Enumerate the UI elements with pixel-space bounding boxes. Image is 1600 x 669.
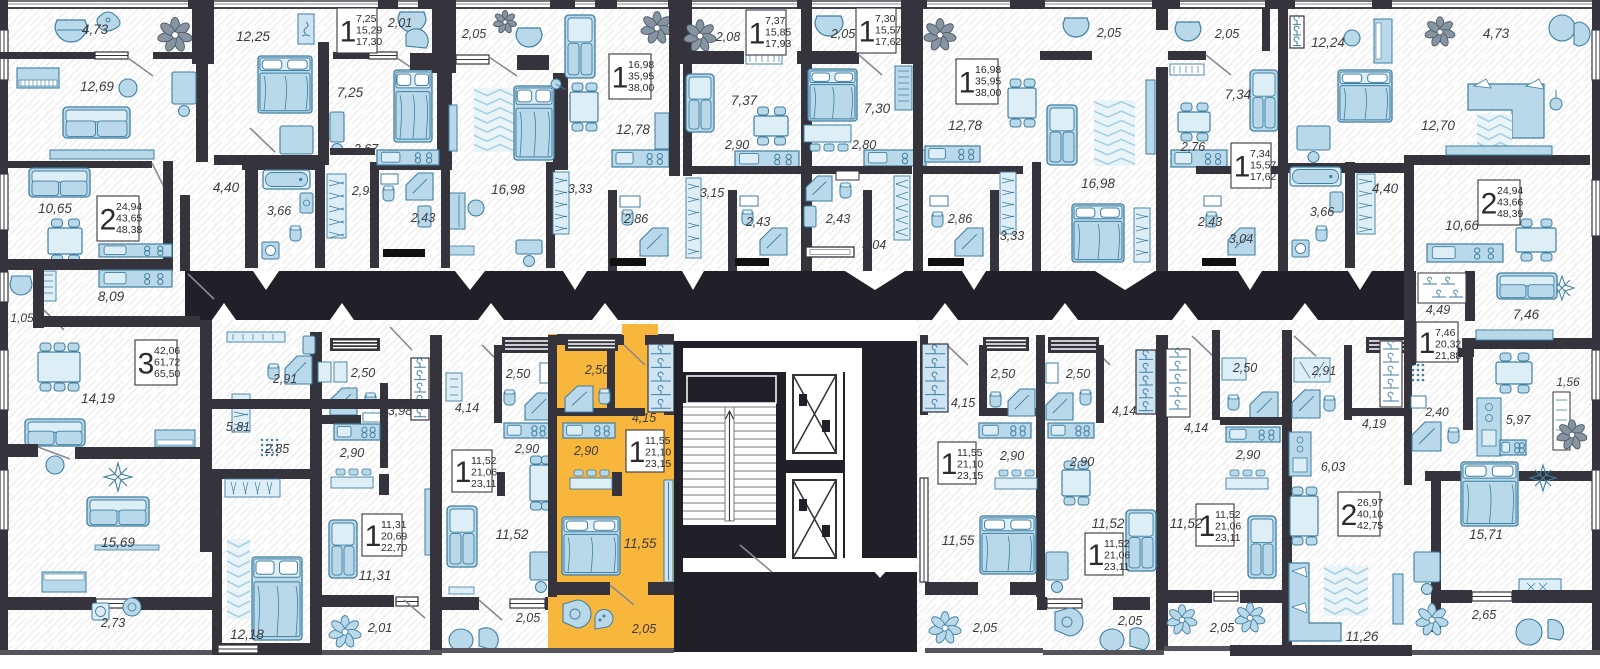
svg-text:20,32: 20,32: [1435, 339, 1461, 351]
svg-text:11,55: 11,55: [942, 533, 975, 548]
svg-text:17,62: 17,62: [875, 36, 901, 48]
svg-text:11,52: 11,52: [1170, 516, 1203, 531]
svg-text:2,43: 2,43: [1197, 215, 1222, 229]
svg-text:35,95: 35,95: [628, 71, 654, 83]
svg-text:12,78: 12,78: [616, 122, 650, 137]
svg-text:11,55: 11,55: [624, 536, 657, 551]
svg-text:12,78: 12,78: [948, 118, 982, 133]
svg-text:4,73: 4,73: [82, 22, 109, 37]
svg-text:11,52: 11,52: [471, 455, 497, 467]
svg-text:15,57: 15,57: [875, 25, 901, 37]
svg-text:2,05: 2,05: [1214, 27, 1239, 41]
svg-text:3,98: 3,98: [388, 404, 412, 418]
svg-text:22,70: 22,70: [381, 542, 407, 554]
svg-text:7,46: 7,46: [1435, 327, 1456, 339]
svg-text:7,25: 7,25: [337, 85, 364, 100]
svg-text:4,14: 4,14: [455, 401, 479, 415]
svg-text:4,19: 4,19: [1362, 417, 1386, 431]
svg-text:4,14: 4,14: [1112, 404, 1136, 418]
svg-text:23,11: 23,11: [471, 478, 497, 490]
svg-text:6,03: 6,03: [1321, 460, 1345, 474]
svg-text:4,40: 4,40: [213, 180, 240, 195]
svg-text:2,05: 2,05: [972, 621, 997, 635]
svg-text:21,10: 21,10: [957, 459, 983, 471]
svg-text:2,91: 2,91: [1311, 364, 1336, 378]
svg-text:16,98: 16,98: [1081, 176, 1115, 191]
svg-text:15,71: 15,71: [1469, 527, 1503, 542]
svg-text:43,65: 43,65: [116, 213, 142, 225]
svg-text:2,90: 2,90: [514, 442, 539, 456]
svg-text:11,52: 11,52: [1104, 538, 1130, 550]
svg-text:21,06: 21,06: [1104, 550, 1130, 562]
svg-text:1: 1: [455, 456, 472, 489]
svg-text:2,05: 2,05: [1096, 26, 1121, 40]
svg-text:23,15: 23,15: [645, 458, 671, 470]
svg-text:8,09: 8,09: [98, 289, 125, 304]
svg-text:2,50: 2,50: [584, 363, 609, 377]
svg-text:1: 1: [629, 436, 646, 469]
svg-text:2,90: 2,90: [573, 444, 598, 458]
svg-text:12,18: 12,18: [230, 627, 264, 642]
svg-text:2,90: 2,90: [339, 446, 364, 460]
svg-text:7,34: 7,34: [1250, 148, 1271, 160]
svg-text:2,08: 2,08: [715, 30, 740, 44]
svg-text:12,24: 12,24: [1311, 35, 1345, 50]
svg-text:20,69: 20,69: [381, 531, 407, 543]
svg-text:4,15: 4,15: [951, 396, 975, 410]
svg-text:65,50: 65,50: [154, 368, 180, 380]
svg-text:2: 2: [1481, 188, 1498, 221]
svg-text:16,98: 16,98: [975, 64, 1001, 76]
svg-text:2,50: 2,50: [990, 367, 1015, 381]
svg-text:1,05: 1,05: [10, 311, 34, 325]
svg-text:11,55: 11,55: [957, 447, 983, 459]
svg-text:2,73: 2,73: [100, 616, 125, 630]
svg-text:2,94: 2,94: [351, 184, 376, 198]
svg-text:10,65: 10,65: [38, 201, 72, 216]
svg-text:2,76: 2,76: [1180, 140, 1205, 154]
svg-text:2: 2: [100, 204, 117, 237]
svg-text:3,66: 3,66: [1310, 205, 1334, 219]
svg-text:11,26: 11,26: [1346, 629, 1379, 644]
svg-text:43,66: 43,66: [1497, 197, 1523, 209]
svg-text:1: 1: [941, 448, 958, 481]
svg-text:48,38: 48,38: [116, 224, 142, 236]
svg-text:7,46: 7,46: [1513, 307, 1540, 322]
svg-text:3,33: 3,33: [568, 182, 592, 196]
svg-text:15,69: 15,69: [101, 535, 135, 550]
svg-text:11,55: 11,55: [645, 435, 671, 447]
svg-text:1: 1: [1419, 327, 1436, 360]
svg-text:2,50: 2,50: [1232, 361, 1257, 375]
svg-text:11,52: 11,52: [1092, 516, 1125, 531]
svg-text:15,57: 15,57: [1250, 160, 1276, 172]
svg-text:7,30: 7,30: [864, 101, 891, 116]
svg-text:23,11: 23,11: [1215, 532, 1241, 544]
svg-text:17,62: 17,62: [1250, 171, 1276, 183]
svg-text:1: 1: [1088, 539, 1105, 572]
svg-text:3,66: 3,66: [267, 204, 291, 218]
svg-text:40,10: 40,10: [1357, 509, 1383, 521]
svg-text:7,30: 7,30: [875, 13, 896, 25]
svg-text:21,10: 21,10: [645, 447, 671, 459]
svg-text:1: 1: [365, 520, 382, 553]
svg-text:2,43: 2,43: [825, 212, 850, 226]
svg-text:2,90: 2,90: [1235, 448, 1260, 462]
svg-text:1: 1: [612, 62, 629, 95]
svg-text:2,43: 2,43: [745, 215, 770, 229]
svg-text:1: 1: [859, 16, 876, 49]
svg-text:2,40: 2,40: [1424, 405, 1449, 419]
svg-text:7,25: 7,25: [356, 13, 377, 25]
svg-text:4,73: 4,73: [1483, 26, 1510, 41]
svg-text:7,37: 7,37: [765, 15, 786, 27]
svg-text:1: 1: [749, 18, 766, 51]
svg-text:2,90: 2,90: [999, 449, 1024, 463]
svg-text:2,05: 2,05: [1117, 614, 1142, 628]
svg-text:42,06: 42,06: [154, 345, 180, 357]
svg-text:2,01: 2,01: [387, 16, 412, 30]
svg-text:2,86: 2,86: [947, 212, 972, 226]
svg-text:2,50: 2,50: [350, 366, 375, 380]
svg-text:21,06: 21,06: [471, 467, 497, 479]
svg-text:2,90: 2,90: [724, 138, 749, 152]
svg-text:11,31: 11,31: [359, 568, 392, 583]
svg-text:21,88: 21,88: [1435, 350, 1461, 362]
svg-text:24,94: 24,94: [1497, 185, 1523, 197]
svg-text:15,29: 15,29: [356, 25, 382, 37]
svg-text:2,05: 2,05: [631, 622, 656, 636]
svg-text:2: 2: [1341, 499, 1358, 532]
svg-text:11,52: 11,52: [1215, 509, 1241, 521]
svg-text:11,52: 11,52: [496, 527, 529, 542]
svg-text:12,69: 12,69: [80, 79, 114, 94]
svg-text:5,81: 5,81: [226, 420, 250, 434]
svg-text:38,00: 38,00: [975, 87, 1001, 99]
svg-text:7,34: 7,34: [1225, 87, 1251, 102]
svg-text:4,40: 4,40: [1372, 181, 1399, 196]
svg-text:26,97: 26,97: [1357, 497, 1383, 509]
svg-text:2,86: 2,86: [623, 212, 648, 226]
svg-text:5,97: 5,97: [1506, 413, 1531, 427]
svg-text:3,15: 3,15: [700, 186, 724, 200]
svg-text:4,15: 4,15: [632, 411, 656, 425]
svg-text:2,43: 2,43: [410, 211, 435, 225]
svg-text:2,01: 2,01: [367, 621, 392, 635]
svg-text:3,04: 3,04: [1229, 232, 1253, 246]
svg-text:2,90: 2,90: [1069, 455, 1094, 469]
svg-text:7,37: 7,37: [731, 93, 758, 108]
svg-text:4,49: 4,49: [1426, 303, 1450, 317]
svg-text:2,80: 2,80: [851, 138, 876, 152]
svg-text:35,95: 35,95: [975, 76, 1001, 88]
svg-text:2,85: 2,85: [264, 442, 289, 456]
svg-text:1: 1: [1234, 151, 1251, 184]
svg-text:23,15: 23,15: [957, 470, 983, 482]
svg-text:61,72: 61,72: [154, 357, 180, 369]
svg-text:3,04: 3,04: [862, 238, 886, 252]
svg-text:17,30: 17,30: [356, 36, 382, 48]
svg-text:10,66: 10,66: [1445, 218, 1479, 233]
svg-text:42,75: 42,75: [1357, 520, 1383, 532]
svg-text:4,14: 4,14: [1184, 421, 1208, 435]
svg-text:17,93: 17,93: [765, 38, 791, 50]
svg-text:1,56: 1,56: [1556, 375, 1580, 389]
svg-text:1: 1: [959, 67, 976, 100]
svg-text:23,11: 23,11: [1104, 561, 1130, 573]
svg-text:16,98: 16,98: [628, 59, 654, 71]
svg-text:21,06: 21,06: [1215, 521, 1241, 533]
svg-text:11,31: 11,31: [381, 519, 407, 531]
svg-text:2,05: 2,05: [515, 611, 540, 625]
svg-text:15,85: 15,85: [765, 27, 791, 39]
svg-text:2,67: 2,67: [353, 142, 379, 156]
svg-text:2,65: 2,65: [1471, 608, 1496, 622]
svg-text:48,39: 48,39: [1497, 208, 1523, 220]
svg-text:1: 1: [340, 16, 357, 49]
svg-text:12,25: 12,25: [236, 29, 270, 44]
svg-text:24,94: 24,94: [116, 201, 142, 213]
svg-text:12,70: 12,70: [1421, 118, 1455, 133]
svg-text:2,05: 2,05: [830, 27, 855, 41]
svg-text:2,50: 2,50: [505, 367, 530, 381]
svg-text:2,05: 2,05: [461, 27, 486, 41]
svg-text:14,19: 14,19: [81, 391, 115, 406]
svg-text:3: 3: [138, 348, 155, 381]
svg-text:3,33: 3,33: [1000, 229, 1024, 243]
svg-text:2,91: 2,91: [272, 372, 297, 386]
svg-text:38,00: 38,00: [628, 82, 654, 94]
svg-text:16,98: 16,98: [491, 182, 525, 197]
svg-text:2,50: 2,50: [1065, 367, 1090, 381]
svg-text:2,05: 2,05: [1209, 621, 1234, 635]
